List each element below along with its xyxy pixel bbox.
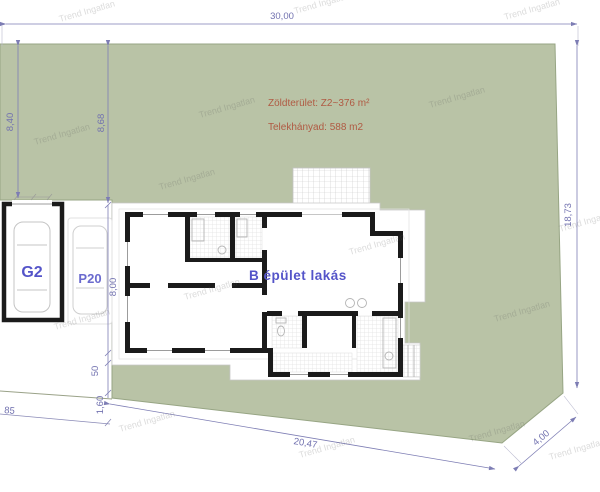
watermark: Trend Ingatlan xyxy=(293,0,351,16)
garage-walls xyxy=(4,204,62,320)
site-plan-drawing: G2 P20 30,00 8,40 8,68 18,73 8,00 xyxy=(0,0,600,492)
garage-label: G2 xyxy=(21,264,42,281)
dim-strip: 1,60 xyxy=(95,396,106,415)
dim-left-a: 8,40 xyxy=(5,113,16,132)
watermark: Trend Ingatlan xyxy=(503,0,561,22)
garage: G2 xyxy=(4,194,62,320)
dim-cut-line xyxy=(519,417,576,466)
watermark: Trend Ingatlan xyxy=(118,408,176,434)
note-plot-ratio: Telekhányad: 588 m2 xyxy=(268,122,364,133)
corner-dimension-line xyxy=(0,414,110,424)
corner-dimension-tick xyxy=(105,419,111,426)
dim-corner: 85 xyxy=(4,405,15,417)
dim-eave: 50 xyxy=(90,366,101,377)
dim-cut: 4,00 xyxy=(531,428,552,448)
note-green-area: Zöldterület: Z2~376 m² xyxy=(268,98,370,109)
site-plan-canvas: G2 P20 30,00 8,40 8,68 18,73 8,00 xyxy=(0,0,600,492)
building-label: B épület lakás xyxy=(249,268,347,283)
watermark: Trend Ingatlan xyxy=(58,0,116,24)
watermark: Trend Ingatlan xyxy=(548,436,600,462)
dim-house: 8,00 xyxy=(108,278,119,297)
dim-left-b: 8,68 xyxy=(96,114,107,133)
parking-label: P20 xyxy=(78,271,101,286)
dim-top: 30,00 xyxy=(270,11,294,22)
